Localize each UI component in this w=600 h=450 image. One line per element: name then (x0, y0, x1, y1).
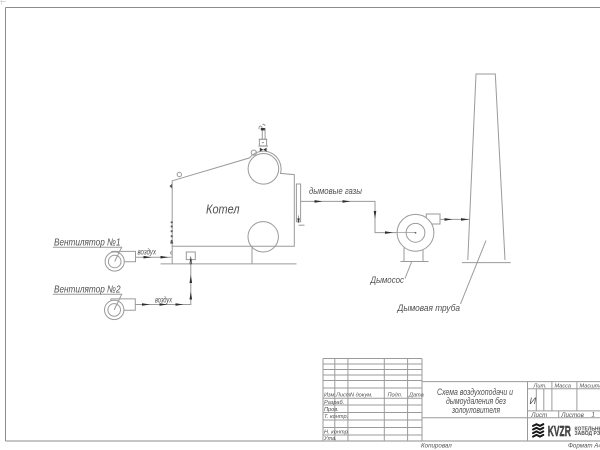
svg-text:Дата: Дата (408, 392, 424, 398)
svg-text:N докум.: N докум. (350, 392, 373, 398)
svg-text:KVZR: KVZR (548, 424, 571, 440)
svg-text:Лист: Лист (530, 412, 547, 419)
svg-text:воздух: воздух (138, 247, 157, 256)
svg-text:Пров.: Пров. (324, 407, 339, 413)
svg-text:Котел: Котел (206, 203, 240, 217)
svg-text:Вентилятор №1: Вентилятор №1 (54, 237, 121, 248)
svg-text:Подп.: Подп. (388, 392, 403, 398)
svg-text:Формат А4: Формат А4 (568, 443, 600, 450)
svg-text:1: 1 (592, 412, 595, 419)
svg-text:Лит.: Лит. (533, 383, 547, 389)
svg-text:Копировал: Копировал (421, 443, 452, 450)
svg-text:Разраб.: Разраб. (324, 400, 344, 406)
svg-text:Масса: Масса (555, 383, 572, 389)
svg-text:дымовые газы: дымовые газы (309, 186, 362, 196)
svg-text:Листов: Листов (560, 412, 584, 419)
svg-text:Вентилятор №2: Вентилятор №2 (54, 285, 121, 296)
svg-text:Н. контр.: Н. контр. (324, 429, 349, 435)
svg-text:Утв.: Утв. (323, 436, 337, 442)
svg-text:Лист: Лист (335, 392, 351, 398)
svg-text:Масштаб: Масштаб (580, 383, 600, 389)
svg-text:ЗАВОД РЭ: ЗАВОД РЭ (575, 431, 600, 437)
svg-text:Изм.: Изм. (324, 392, 336, 398)
svg-text:Дымовая труба: Дымовая труба (397, 303, 460, 313)
svg-text:Дымосос: Дымосос (370, 275, 405, 285)
svg-text:И: И (530, 396, 537, 406)
svg-text:воздух: воздух (155, 296, 173, 305)
svg-text:Т. контр.: Т. контр. (324, 414, 348, 420)
svg-text:золоуловителя: золоуловителя (451, 405, 500, 415)
